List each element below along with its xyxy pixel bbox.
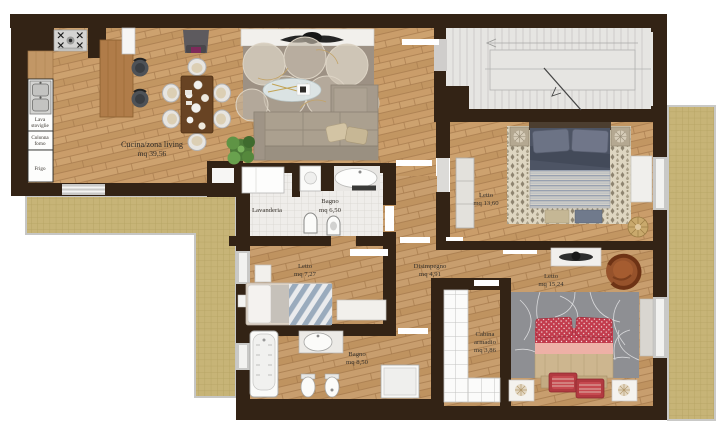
svg-text:Cucina/zona living: Cucina/zona living bbox=[121, 140, 183, 149]
svg-text:Letto: Letto bbox=[544, 273, 559, 280]
svg-text:mq 39,56: mq 39,56 bbox=[138, 149, 167, 158]
svg-text:mq 3,86: mq 3,86 bbox=[474, 347, 497, 354]
svg-text:Letto: Letto bbox=[479, 192, 494, 199]
svg-text:stoviglie: stoviglie bbox=[31, 123, 49, 129]
svg-text:Frigo: Frigo bbox=[34, 166, 45, 172]
svg-text:Letto: Letto bbox=[298, 263, 313, 270]
svg-text:forno: forno bbox=[34, 140, 45, 147]
svg-text:mq 15,24: mq 15,24 bbox=[538, 281, 564, 288]
svg-text:Bagno: Bagno bbox=[321, 198, 339, 205]
svg-text:mq 8,50: mq 8,50 bbox=[346, 359, 369, 366]
svg-text:Lavanderia: Lavanderia bbox=[252, 207, 282, 214]
svg-text:Cabina: Cabina bbox=[476, 331, 495, 338]
svg-text:armadio: armadio bbox=[474, 339, 497, 346]
svg-text:mq 7,27: mq 7,27 bbox=[294, 271, 317, 278]
svg-text:Disimpegno: Disimpegno bbox=[414, 263, 447, 270]
svg-text:mq 13,60: mq 13,60 bbox=[473, 200, 499, 207]
svg-text:mq 6,50: mq 6,50 bbox=[319, 207, 342, 214]
svg-text:mq 4,91: mq 4,91 bbox=[419, 271, 441, 278]
svg-text:Bagno: Bagno bbox=[348, 351, 366, 358]
